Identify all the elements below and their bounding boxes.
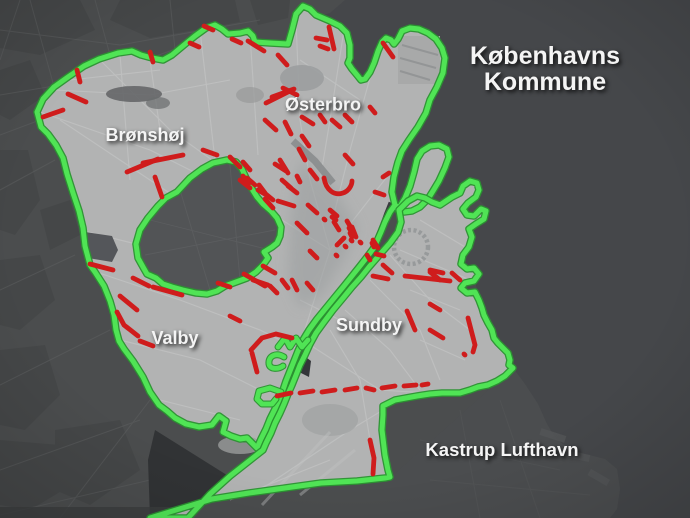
- svg-text:Brønshøj: Brønshøj: [106, 125, 185, 145]
- svg-text:Østerbro: Østerbro: [285, 95, 361, 115]
- svg-text:Københavns: Københavns: [470, 42, 620, 70]
- svg-text:Kommune: Kommune: [484, 68, 606, 96]
- svg-text:Valby: Valby: [151, 328, 198, 348]
- svg-text:Sundby: Sundby: [336, 315, 402, 335]
- svg-text:Kastrup Lufthavn: Kastrup Lufthavn: [425, 439, 578, 460]
